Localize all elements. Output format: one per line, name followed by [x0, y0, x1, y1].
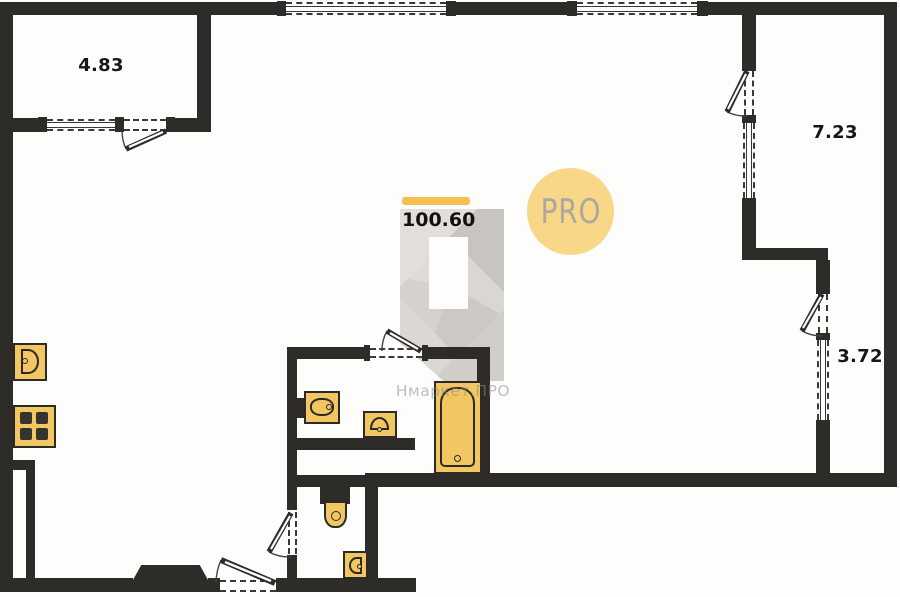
- door-arc: [216, 560, 221, 583]
- door-symbols: [0, 0, 900, 597]
- door-arc: [269, 552, 291, 557]
- floor-plan: 4.83 7.23 3.72 100.60 PRO Нмаркет.ПРО: [0, 0, 900, 597]
- door-arc: [802, 331, 822, 336]
- door-arc: [727, 112, 747, 116]
- watermark-text: Нмаркет.ПРО: [388, 382, 518, 400]
- total-area-label: 100.60: [402, 209, 475, 231]
- pro-badge: PRO: [527, 168, 614, 255]
- door-arc: [382, 331, 387, 351]
- total-area-accent-bar: [402, 197, 470, 205]
- pro-badge-label: PRO: [540, 192, 601, 232]
